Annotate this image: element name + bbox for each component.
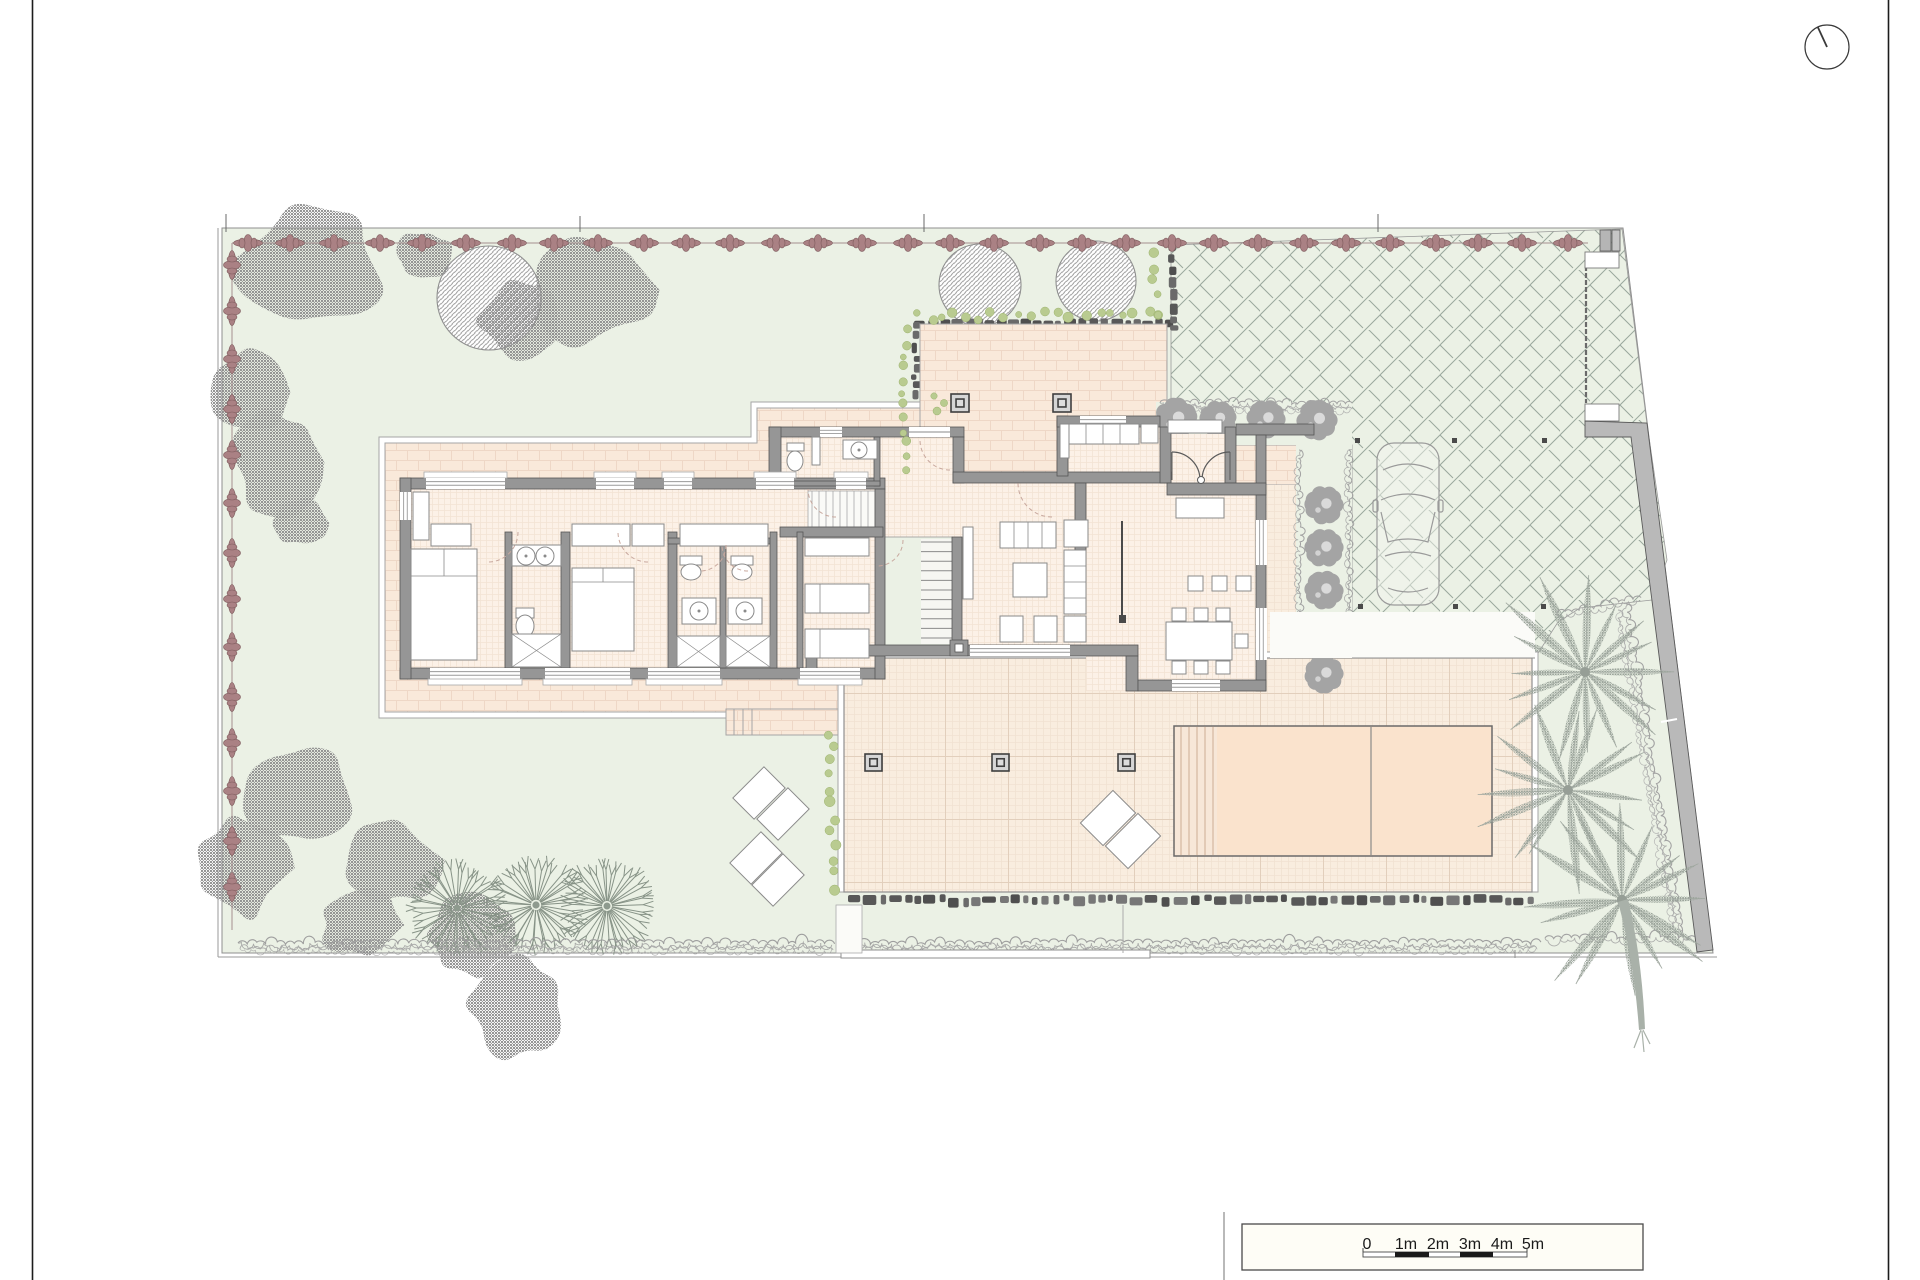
- svg-text:2m: 2m: [1427, 1236, 1449, 1253]
- svg-text:3m: 3m: [1459, 1236, 1481, 1253]
- svg-text:1m: 1m: [1395, 1236, 1417, 1253]
- svg-text:0: 0: [1363, 1236, 1372, 1253]
- svg-text:5m: 5m: [1522, 1236, 1544, 1253]
- svg-text:4m: 4m: [1491, 1236, 1513, 1253]
